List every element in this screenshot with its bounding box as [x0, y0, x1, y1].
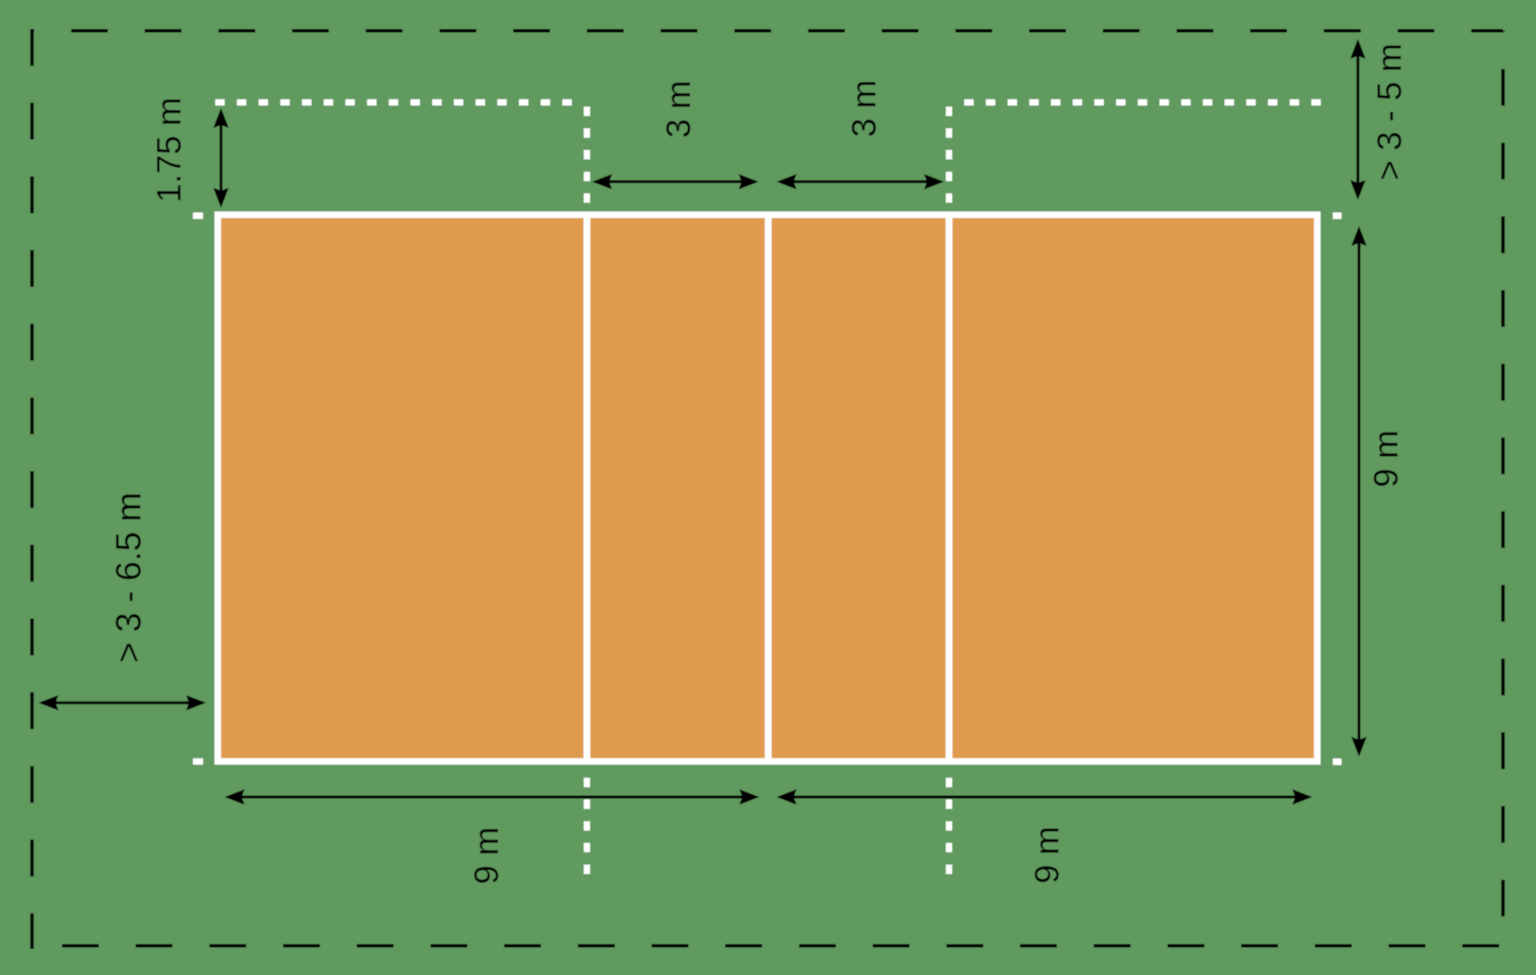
svg-text:9 m: 9 m — [1368, 430, 1406, 488]
svg-text:9 m: 9 m — [1029, 826, 1067, 884]
svg-text:> 3 - 5 m: > 3 - 5 m — [1371, 43, 1409, 180]
svg-text:1.75 m: 1.75 m — [151, 97, 189, 202]
svg-text:> 3 - 6.5 m: > 3 - 6.5 m — [108, 492, 148, 663]
svg-text:3 m: 3 m — [660, 80, 698, 138]
svg-text:9 m: 9 m — [468, 827, 506, 885]
svg-text:3 m: 3 m — [846, 80, 884, 138]
